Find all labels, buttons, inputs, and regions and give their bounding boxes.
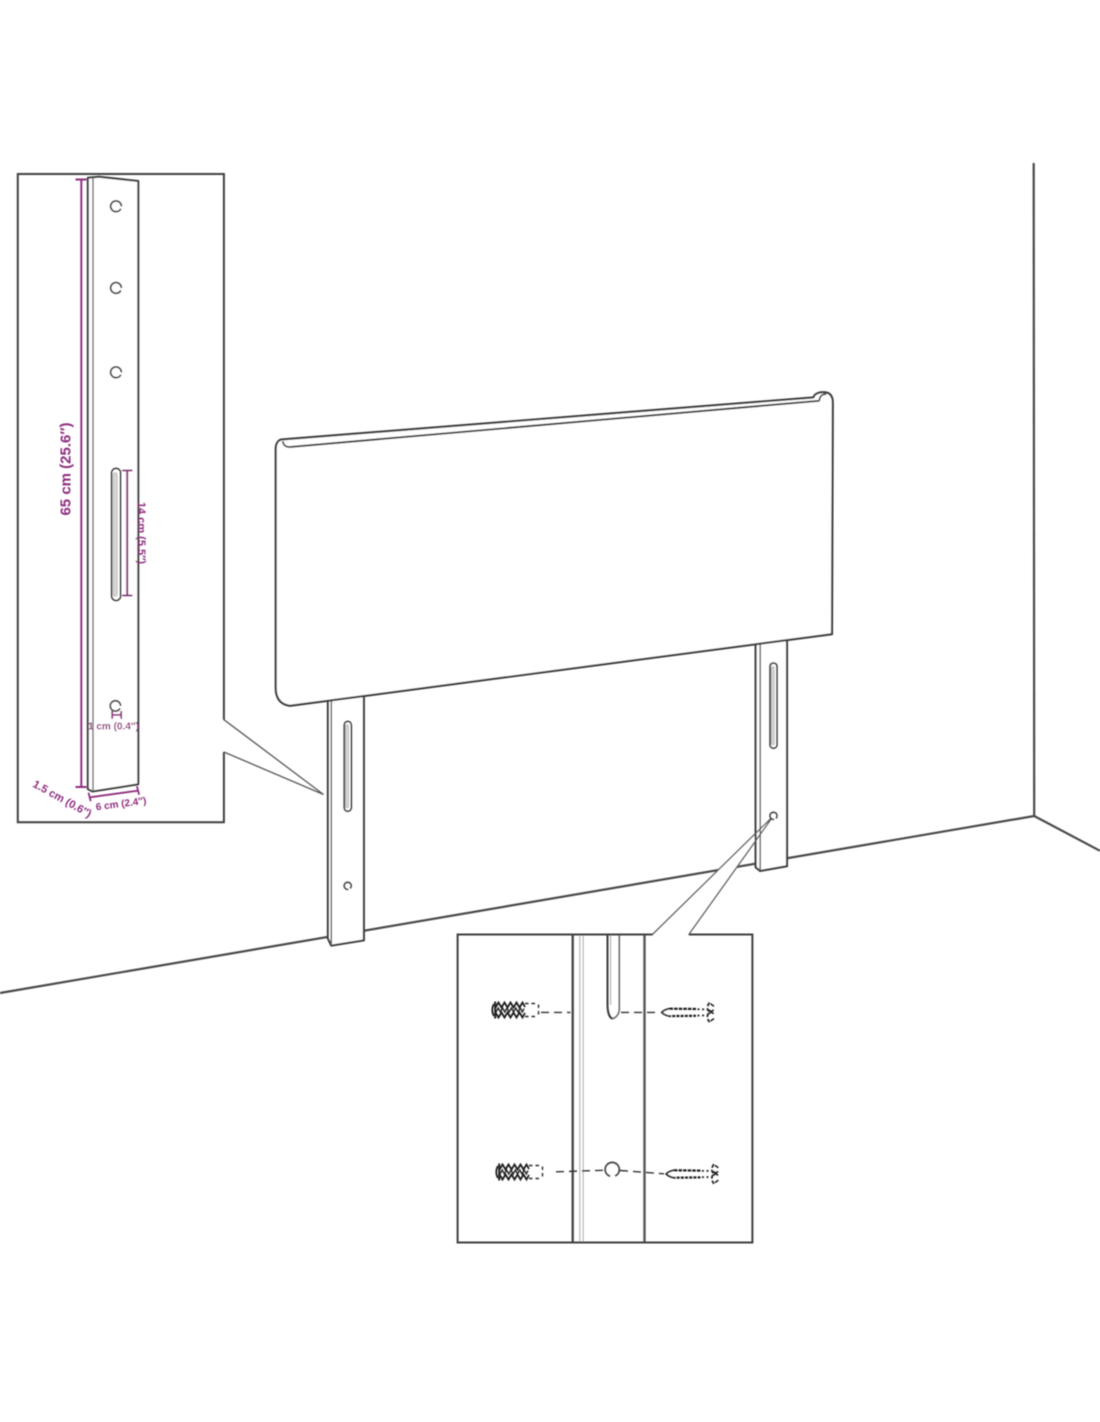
svg-text:14 cm (5.5″): 14 cm (5.5″): [135, 502, 147, 564]
svg-text:1 cm (0.4″): 1 cm (0.4″): [88, 722, 139, 733]
svg-text:65 cm (25.6″): 65 cm (25.6″): [58, 422, 75, 515]
